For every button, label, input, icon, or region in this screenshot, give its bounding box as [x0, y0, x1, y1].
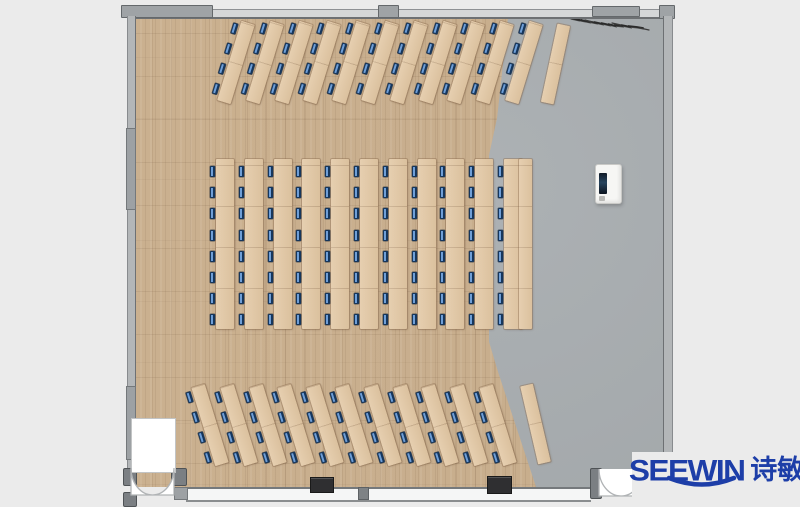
chair-marker [498, 230, 503, 241]
chair-marker [210, 314, 215, 325]
desk-center-rows [418, 159, 436, 329]
desk-center-rows [475, 159, 493, 329]
chair-marker [239, 293, 244, 304]
chair-marker [440, 208, 445, 219]
chair-marker [469, 166, 474, 177]
chair-marker [354, 272, 359, 283]
chair-marker [469, 314, 474, 325]
brand-name-cjk: 诗敏 [750, 448, 800, 487]
desk-center-rows [389, 159, 407, 329]
desk-center-rows [446, 159, 464, 329]
chair-marker [412, 166, 417, 177]
chair-marker [268, 230, 273, 241]
chair-marker [325, 230, 330, 241]
floor-plan: SEEWIN诗敏 [0, 0, 800, 507]
chair-marker [498, 314, 503, 325]
chair-marker [296, 208, 301, 219]
chair-marker [354, 230, 359, 241]
chair-marker [498, 293, 503, 304]
chair-marker [412, 187, 417, 198]
chair-marker [296, 230, 301, 241]
chair-marker [383, 208, 388, 219]
chair-marker [239, 166, 244, 177]
chair-marker [412, 251, 417, 262]
chair-marker [325, 293, 330, 304]
chair-marker [268, 187, 273, 198]
chair-marker [325, 251, 330, 262]
chair-marker [239, 208, 244, 219]
front-table [519, 159, 532, 329]
chair-marker [268, 251, 273, 262]
chair-marker [498, 187, 503, 198]
chair-marker [210, 230, 215, 241]
chair-marker [325, 208, 330, 219]
top-wall-segment [378, 5, 399, 18]
chair-marker [268, 272, 273, 283]
chair-marker [210, 293, 215, 304]
chair-marker [296, 251, 301, 262]
chair-marker [354, 187, 359, 198]
window-mullion [358, 487, 369, 500]
bottom-wall-piece [174, 487, 188, 500]
chair-marker [412, 272, 417, 283]
chair-marker [498, 272, 503, 283]
chair-marker [440, 251, 445, 262]
chair-marker [239, 187, 244, 198]
podium-screen-icon [599, 173, 607, 194]
chair-marker [210, 251, 215, 262]
chair-marker [268, 166, 273, 177]
chair-marker [268, 314, 273, 325]
column [487, 476, 512, 494]
chair-marker [296, 187, 301, 198]
chair-marker [469, 272, 474, 283]
chair-marker [354, 314, 359, 325]
chair-marker [469, 208, 474, 219]
chair-marker [210, 272, 215, 283]
chair-marker [325, 272, 330, 283]
chair-marker [440, 187, 445, 198]
chair-marker [296, 314, 301, 325]
chair-marker [325, 187, 330, 198]
chair-marker [440, 293, 445, 304]
chair-marker [296, 293, 301, 304]
chair-marker [440, 314, 445, 325]
column [310, 477, 334, 493]
bottom-window-band [186, 487, 591, 502]
desk-center-rows [331, 159, 349, 329]
desk-center-rows [216, 159, 234, 329]
brand-logo: SEEWIN诗敏 [630, 448, 800, 503]
chair-marker [440, 272, 445, 283]
podium [595, 164, 622, 204]
chair-marker [412, 314, 417, 325]
door-left-swing [131, 468, 174, 495]
chair-marker [440, 230, 445, 241]
chair-marker [383, 166, 388, 177]
podium-base [599, 196, 605, 201]
chair-marker [354, 208, 359, 219]
chair-marker [383, 230, 388, 241]
logo-smile-icon [664, 475, 742, 491]
chair-marker [325, 314, 330, 325]
chair-marker [239, 272, 244, 283]
top-wall-segment [592, 6, 640, 17]
left-wall-segment [126, 128, 136, 210]
chair-marker [268, 293, 273, 304]
chair-marker [296, 272, 301, 283]
chair-marker [469, 230, 474, 241]
chair-marker [383, 272, 388, 283]
chair-marker [440, 166, 445, 177]
chair-marker [498, 251, 503, 262]
chair-marker [469, 187, 474, 198]
desk-center-rows [245, 159, 263, 329]
chair-marker [412, 208, 417, 219]
chair-marker [210, 187, 215, 198]
door-left-opening [131, 418, 176, 473]
chair-marker [498, 166, 503, 177]
chair-marker [383, 314, 388, 325]
chair-marker [469, 293, 474, 304]
chair-marker [383, 251, 388, 262]
chair-marker [412, 230, 417, 241]
chair-marker [383, 187, 388, 198]
chair-marker [383, 293, 388, 304]
chair-marker [210, 208, 215, 219]
chair-marker [354, 293, 359, 304]
right-wall [663, 16, 673, 462]
chair-marker [239, 251, 244, 262]
chair-marker [354, 251, 359, 262]
desk-center-rows [274, 159, 292, 329]
chair-marker [412, 293, 417, 304]
chair-marker [354, 166, 359, 177]
chair-marker [498, 208, 503, 219]
chair-marker [239, 230, 244, 241]
chair-marker [469, 251, 474, 262]
chair-marker [296, 166, 301, 177]
desk-center-rows [360, 159, 378, 329]
desk-center-rows [302, 159, 320, 329]
chair-marker [325, 166, 330, 177]
chair-marker [268, 208, 273, 219]
chair-marker [210, 166, 215, 177]
chair-marker [239, 314, 244, 325]
